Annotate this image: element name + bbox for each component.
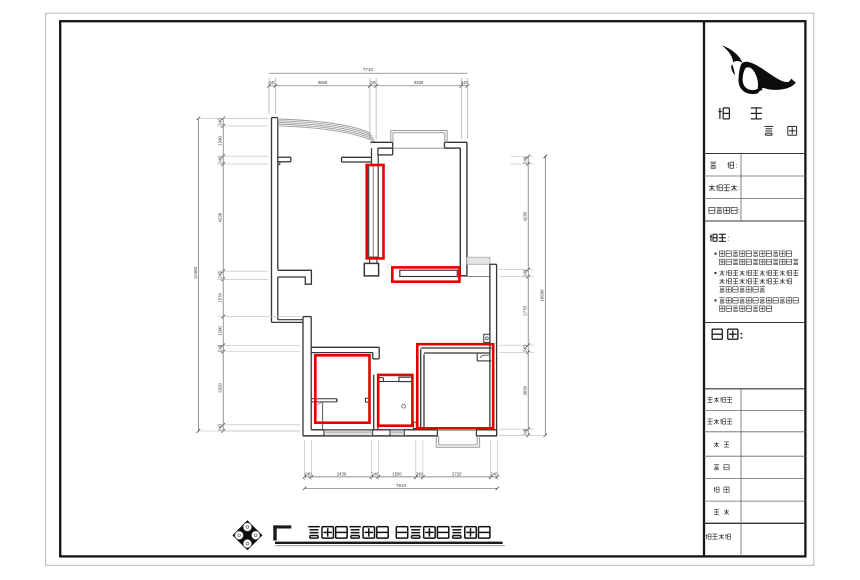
svg-text:240: 240 <box>218 118 223 126</box>
svg-text:240: 240 <box>490 471 498 476</box>
svg-text:10990: 10990 <box>540 289 545 302</box>
svg-text:4230: 4230 <box>523 211 528 221</box>
svg-text:240: 240 <box>218 344 223 352</box>
svg-text:240: 240 <box>304 471 312 476</box>
svg-text:12460: 12460 <box>193 266 198 279</box>
svg-text:240: 240 <box>218 271 223 279</box>
svg-text:3030: 3030 <box>523 385 528 395</box>
svg-text::: : <box>736 163 738 170</box>
svg-text:7710: 7710 <box>363 67 374 72</box>
svg-text:1570: 1570 <box>218 293 223 303</box>
svg-text:240: 240 <box>523 156 528 164</box>
svg-text:3660: 3660 <box>318 80 328 85</box>
svg-text:1340: 1340 <box>218 136 223 146</box>
svg-text:240: 240 <box>218 156 223 164</box>
svg-text:240: 240 <box>523 345 528 353</box>
svg-text:4230: 4230 <box>218 212 223 222</box>
svg-text:1500: 1500 <box>392 471 402 476</box>
svg-text::: : <box>728 236 730 243</box>
svg-text:240: 240 <box>416 471 424 476</box>
svg-text:240: 240 <box>371 471 379 476</box>
svg-text:1200: 1200 <box>218 326 223 336</box>
svg-text:2720: 2720 <box>452 471 462 476</box>
svg-text:3330: 3330 <box>414 80 424 85</box>
svg-text::: : <box>740 330 744 342</box>
svg-text::: : <box>738 208 740 215</box>
svg-text:2430: 2430 <box>337 471 347 476</box>
svg-text::: : <box>738 185 740 192</box>
svg-text:240: 240 <box>523 428 528 436</box>
svg-text:2770: 2770 <box>523 306 528 316</box>
svg-text:2920: 2920 <box>218 383 223 393</box>
svg-text:7610: 7610 <box>396 483 407 488</box>
svg-text:240: 240 <box>218 424 223 432</box>
svg-text:240: 240 <box>523 269 528 277</box>
